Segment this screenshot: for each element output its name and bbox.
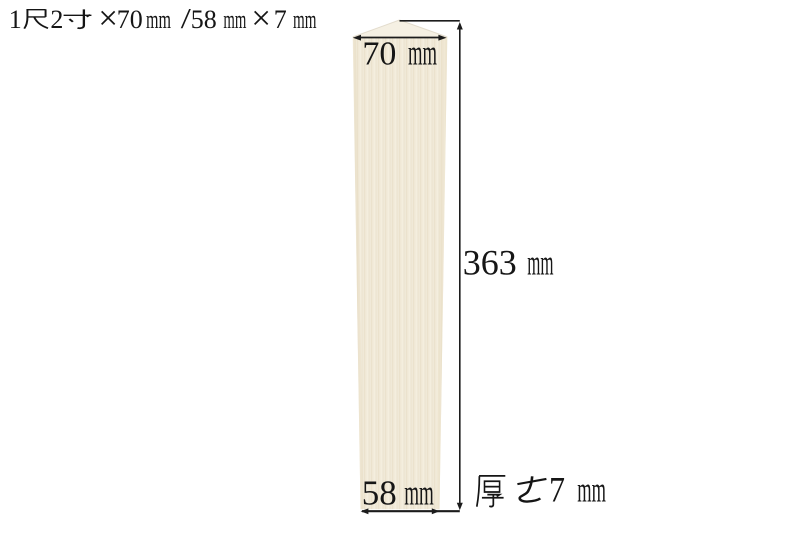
svg-text:58: 58: [191, 5, 217, 34]
svg-text:70: 70: [117, 5, 143, 34]
svg-text:mm: mm: [293, 5, 317, 34]
svg-text:58: 58: [362, 474, 397, 513]
svg-text:2: 2: [50, 5, 63, 34]
svg-text:×: ×: [251, 0, 271, 38]
svg-text:mm: mm: [146, 5, 171, 34]
svg-text:×: ×: [98, 0, 118, 38]
svg-text:7: 7: [549, 471, 565, 510]
svg-text:70: 70: [362, 36, 396, 73]
svg-text:1: 1: [9, 5, 22, 34]
svg-text:363: 363: [463, 243, 517, 283]
svg-text:mm: mm: [527, 243, 553, 283]
svg-text:mm: mm: [408, 33, 437, 73]
svg-text:mm: mm: [577, 469, 606, 509]
svg-text:7: 7: [274, 5, 287, 34]
svg-text:mm: mm: [404, 473, 434, 513]
svg-text:mm: mm: [223, 5, 246, 34]
